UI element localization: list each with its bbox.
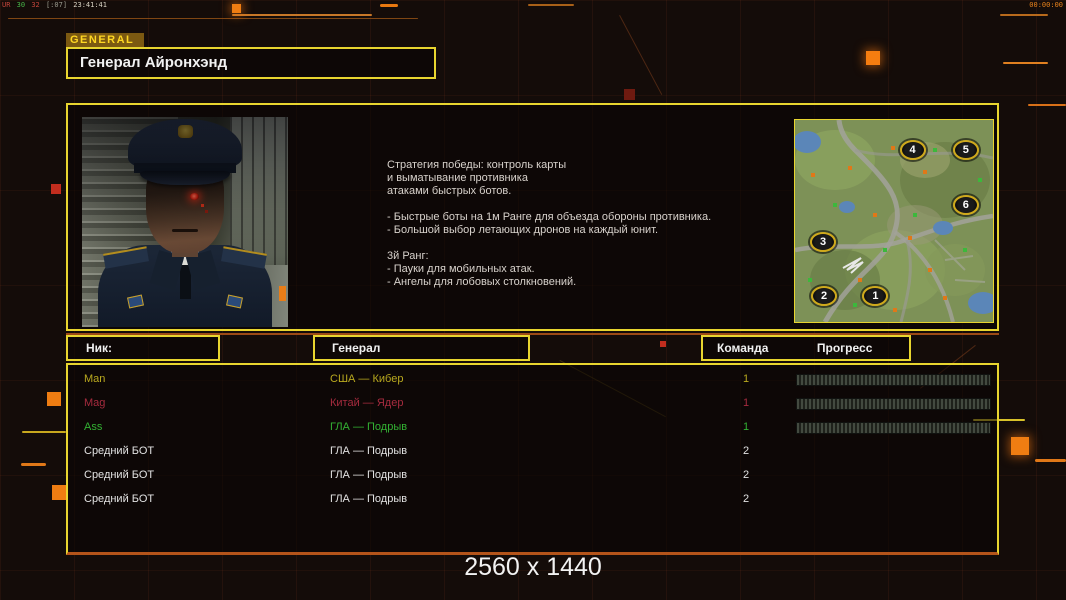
player-team: 2 — [738, 445, 754, 457]
spawn-marker: 6 — [953, 195, 979, 215]
player-general: Китай — Ядер — [330, 397, 403, 409]
header-general: Генерал — [313, 335, 530, 361]
decor-square — [866, 51, 880, 65]
decor-square — [1011, 437, 1029, 455]
header-team-progress: Команда Прогресс — [701, 335, 911, 361]
player-team: 1 — [738, 397, 754, 409]
decor-line — [1028, 104, 1066, 106]
roster-row: Средний БОТ ГЛА — Подрыв 2 — [68, 488, 997, 512]
battle-minimap: 1 2 3 4 5 6 — [794, 119, 994, 323]
general-portrait — [82, 117, 288, 327]
resolution-label: 2560 x 1440 — [0, 553, 1066, 582]
player-roster: Man США — Кибер 1 Mag Китай — Ядер 1 Ass… — [66, 363, 999, 555]
match-timer: 00:00:00 — [1029, 1, 1063, 9]
strategy-line: и выматывание противника — [387, 172, 787, 185]
debug-segment: UR — [2, 1, 10, 9]
roster-row: Mag Китай — Ядер 1 — [68, 392, 997, 416]
decor-square — [232, 4, 241, 13]
decor-line — [8, 18, 418, 19]
decor-square — [624, 89, 635, 100]
decor-line — [1035, 459, 1066, 462]
header-nick-label: Ник: — [68, 337, 218, 359]
player-nick: Средний БОТ — [84, 469, 154, 481]
player-nick: Mag — [84, 397, 105, 409]
decor-line — [528, 4, 574, 6]
spawn-marker: 2 — [811, 286, 837, 306]
debug-segment: 23:41:41 — [73, 1, 107, 9]
player-team: 2 — [738, 493, 754, 505]
general-name-panel: Генерал Айронхэнд — [66, 47, 436, 79]
player-nick: Ass — [84, 421, 102, 433]
player-general: ГЛА — Подрыв — [330, 445, 407, 457]
load-progress-bar — [797, 375, 990, 385]
decor-square — [47, 392, 61, 406]
load-progress-bar — [797, 423, 990, 433]
spawn-marker: 4 — [900, 140, 926, 160]
roster-row: Man США — Кибер 1 — [68, 368, 997, 392]
decor-line — [380, 4, 398, 7]
strategy-line: - Быстрые боты на 1м Ранге для объезда о… — [387, 211, 787, 224]
roster-row: Средний БОТ ГЛА — Подрыв 2 — [68, 440, 997, 464]
decor-line — [1000, 14, 1048, 16]
header-nick: Ник: — [66, 335, 220, 361]
strategy-line — [387, 198, 787, 211]
loading-screen: UR 30 32 [:07] 23:41:41 00:00:00 GENERAL… — [0, 0, 1066, 600]
strategy-line: 3й Ранг: — [387, 250, 787, 263]
general-tab: GENERAL — [66, 33, 144, 47]
debug-readout: UR 30 32 [:07] 23:41:41 — [2, 1, 109, 9]
portrait-shadow — [82, 117, 288, 327]
strategy-line: - Большой выбор летающих дронов на кажды… — [387, 224, 787, 237]
player-nick: Man — [84, 373, 105, 385]
decor-line — [232, 14, 372, 16]
player-general: ГЛА — Подрыв — [330, 493, 407, 505]
player-team: 1 — [738, 373, 754, 385]
roster-row: Ass ГЛА — Подрыв 1 — [68, 416, 997, 440]
player-general: ГЛА — Подрыв — [330, 469, 407, 481]
decor-line — [22, 431, 66, 433]
header-general-label: Генерал — [315, 337, 528, 359]
load-progress-bar — [797, 399, 990, 409]
general-name: Генерал Айронхэнд — [68, 49, 434, 77]
header-team-label: Команда — [703, 337, 768, 359]
player-team: 2 — [738, 469, 754, 481]
decor-square — [51, 184, 61, 194]
header-progress-label: Прогресс — [773, 337, 872, 359]
briefing-panel: Стратегия победы: контроль карты и вымат… — [66, 103, 999, 331]
player-general: ГЛА — Подрыв — [330, 421, 407, 433]
strategy-line: атаками быстрых ботов. — [387, 185, 787, 198]
debug-segment: 32 — [31, 1, 39, 9]
debug-segment: [:07] — [46, 1, 67, 9]
player-nick: Средний БОТ — [84, 493, 154, 505]
decor-square — [660, 341, 666, 347]
strategy-line — [387, 237, 787, 250]
strategy-line: - Ангелы для лобовых столкновений. — [387, 276, 787, 289]
strategy-line: - Пауки для мобильных атак. — [387, 263, 787, 276]
strategy-text: Стратегия победы: контроль карты и вымат… — [387, 159, 787, 289]
debug-segment: 30 — [17, 1, 25, 9]
decor-square — [52, 485, 67, 500]
decor-line — [21, 463, 46, 466]
player-general: США — Кибер — [330, 373, 403, 385]
player-team: 1 — [738, 421, 754, 433]
roster-row: Средний БОТ ГЛА — Подрыв 2 — [68, 464, 997, 488]
decor-line — [1003, 62, 1048, 64]
spawn-marker: 1 — [862, 286, 888, 306]
player-nick: Средний БОТ — [84, 445, 154, 457]
strategy-line: Стратегия победы: контроль карты — [387, 159, 787, 172]
